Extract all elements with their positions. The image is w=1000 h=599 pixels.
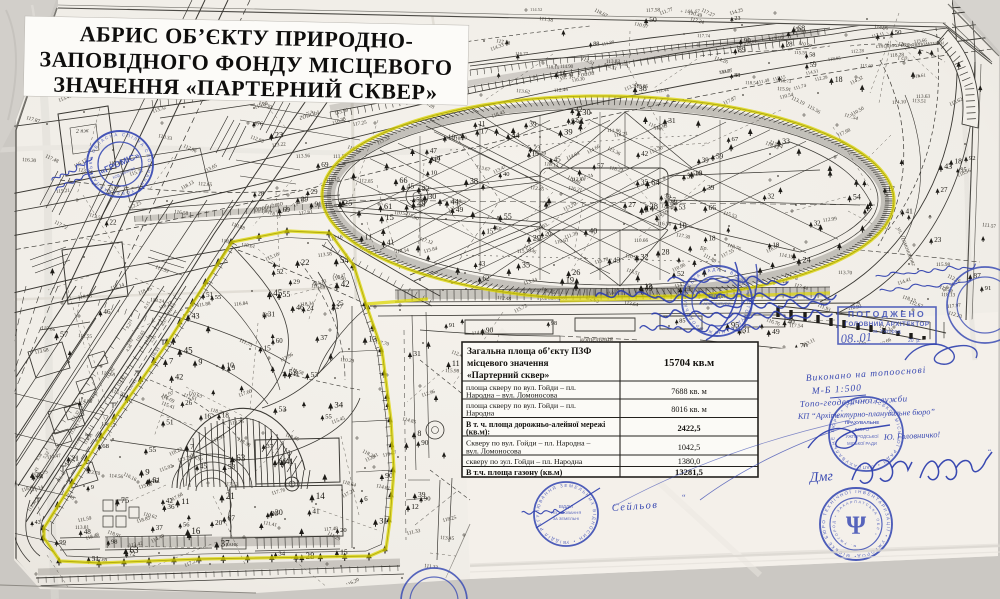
svg-text:39: 39 [529,119,537,128]
svg-text:6: 6 [364,496,368,503]
svg-text:ГОЛОВНИЙ АРХІТЕКТОР: ГОЛОВНИЙ АРХІТЕКТОР [845,320,930,328]
svg-text:88: 88 [593,41,599,48]
svg-text:88: 88 [734,73,740,79]
svg-text:9: 9 [232,365,236,372]
svg-text:117.54: 117.54 [789,323,804,330]
svg-text:43: 43 [35,520,41,526]
svg-text:23: 23 [934,236,942,244]
svg-text:18: 18 [709,234,717,242]
svg-text:118.34: 118.34 [300,301,315,308]
svg-text:39: 39 [564,126,573,136]
svg-text:Загальна площа об’єкту ПЗФ: Загальна площа об’єкту ПЗФ [467,346,591,357]
svg-text:31: 31 [413,349,421,358]
svg-text:ПРАХУВАЛЬНЕ: ПРАХУВАЛЬНЕ [845,420,880,425]
svg-text:90: 90 [421,439,429,447]
svg-text:30: 30 [582,107,591,117]
svg-text:116.56: 116.56 [657,221,672,228]
svg-text:29: 29 [533,233,542,243]
svg-text:53: 53 [311,370,319,379]
svg-text:115.98: 115.98 [445,368,460,375]
svg-text:37: 37 [266,443,273,450]
svg-text:9: 9 [198,358,202,367]
svg-text:113.45: 113.45 [440,535,455,542]
svg-text:90: 90 [424,495,431,502]
svg-text:08..01: 08..01 [840,330,872,346]
svg-text:115.87: 115.87 [860,64,874,70]
svg-text:11: 11 [452,359,460,368]
svg-text:37: 37 [221,538,231,548]
svg-text:22: 22 [301,258,309,267]
svg-text:37: 37 [156,524,164,532]
svg-text:98: 98 [551,321,557,327]
svg-text:30: 30 [428,192,436,201]
svg-text:18: 18 [835,75,843,84]
svg-text:і ср.: і ср. [898,54,910,62]
svg-text:56: 56 [183,522,190,529]
svg-text:63: 63 [236,453,246,463]
svg-text:9: 9 [145,466,150,476]
svg-text:15704 кв.м: 15704 кв.м [664,358,714,369]
svg-text:55: 55 [282,290,290,299]
svg-text:42: 42 [575,106,583,114]
svg-text:60: 60 [276,338,283,345]
svg-text:10: 10 [679,221,687,230]
svg-text:117.48: 117.48 [324,526,339,533]
svg-text:41: 41 [906,208,914,216]
svg-text:22: 22 [110,219,118,227]
svg-text:1042,5: 1042,5 [678,443,701,452]
svg-text:12: 12 [411,502,419,511]
svg-text:10: 10 [431,169,438,176]
svg-text:91: 91 [985,285,992,292]
svg-text:31: 31 [435,155,442,162]
svg-text:114.90: 114.90 [560,65,574,70]
svg-text:57: 57 [60,330,68,339]
svg-text:РЕГУЛЮВАННЯ: РЕГУЛЮВАННЯ [551,510,582,515]
svg-text:В т.ч. площа газону (кв.м): В т.ч. площа газону (кв.м) [466,468,563,477]
svg-text:92: 92 [969,155,976,162]
svg-text:116.77: 116.77 [515,52,529,57]
svg-text:МІСЬКОЇ РАДИ: МІСЬКОЇ РАДИ [847,441,877,446]
svg-text:72: 72 [129,552,135,558]
svg-text:2 пж: 2 пж [76,128,90,135]
svg-text:117.39: 117.39 [532,150,547,157]
svg-text:99: 99 [59,539,66,546]
svg-text:20: 20 [215,519,223,527]
svg-text:59: 59 [716,152,724,161]
svg-text:Бр.: Бр. [494,226,503,232]
svg-text:13281,5: 13281,5 [675,467,703,477]
svg-text:42: 42 [175,373,183,382]
svg-text:49: 49 [772,327,780,336]
svg-text:11: 11 [365,233,372,242]
svg-text:“: “ [988,448,991,456]
svg-text:114.10: 114.10 [892,99,907,106]
svg-text:43: 43 [944,162,952,171]
svg-text:49: 49 [645,283,653,292]
svg-text:45: 45 [184,346,194,356]
svg-text:37: 37 [320,334,328,342]
svg-text:40: 40 [503,171,510,178]
svg-text:116.30: 116.30 [22,157,37,164]
svg-text:15: 15 [486,227,494,235]
svg-text:115.18: 115.18 [517,248,532,255]
svg-text:115.59: 115.59 [794,51,808,56]
svg-text:113.63: 113.63 [916,94,931,100]
svg-text:62: 62 [483,276,490,283]
svg-text:20 р.: 20 р. [908,338,921,344]
svg-text:44: 44 [512,131,520,140]
svg-text:38: 38 [470,177,478,186]
svg-text:39: 39 [707,184,715,192]
svg-text:58: 58 [228,462,236,471]
svg-text:61: 61 [384,202,392,211]
svg-text:(кв.м):: (кв.м): [466,428,490,437]
svg-text:21: 21 [226,491,235,501]
svg-text:23: 23 [734,16,740,22]
svg-text:52: 52 [277,268,285,276]
svg-text:27: 27 [941,186,949,194]
svg-text:68: 68 [102,443,109,450]
svg-text:98: 98 [111,539,117,546]
svg-text:114.56: 114.56 [109,473,124,480]
svg-text:54: 54 [853,192,861,201]
svg-text:35: 35 [522,260,530,269]
svg-text:28: 28 [258,191,265,198]
svg-text:117.52: 117.52 [224,481,239,488]
svg-text:31: 31 [668,116,676,125]
svg-text:39: 39 [702,156,710,164]
svg-text:1380,0: 1380,0 [678,457,701,466]
svg-text:25: 25 [337,299,345,307]
svg-text:45: 45 [200,464,207,471]
svg-text:28: 28 [662,248,670,257]
svg-text:8: 8 [417,429,421,438]
svg-text:Ψ: Ψ [846,511,867,540]
svg-text:114.52: 114.52 [530,7,542,12]
svg-text:23: 23 [275,130,283,139]
svg-text:17: 17 [481,127,489,136]
svg-text:117.58: 117.58 [646,7,661,14]
svg-text:112.44: 112.44 [554,87,569,94]
svg-text:90: 90 [486,325,494,334]
svg-text:91: 91 [449,322,455,329]
svg-text:14: 14 [316,491,326,501]
svg-text:46: 46 [103,308,111,316]
svg-text:28: 28 [786,42,793,49]
svg-text:16: 16 [191,526,200,536]
svg-text:“: “ [682,493,686,502]
svg-text:114.82: 114.82 [78,398,93,405]
svg-text:18: 18 [954,157,962,166]
svg-text:115.21: 115.21 [56,188,71,195]
svg-text:7: 7 [169,356,174,366]
svg-text:місцевого значення: місцевого значення [467,358,549,369]
svg-text:110.52: 110.52 [394,210,409,217]
svg-text:113.56: 113.56 [296,153,311,160]
svg-text:55: 55 [215,294,222,301]
svg-text:113.81: 113.81 [75,525,90,531]
svg-text:15: 15 [264,344,272,353]
svg-text:55: 55 [504,212,512,221]
svg-text:42: 42 [641,150,649,158]
svg-text:66: 66 [709,203,717,212]
svg-text:32: 32 [768,193,775,200]
svg-text:111.55: 111.55 [78,333,93,340]
svg-text:8016 кв. м: 8016 кв. м [671,405,707,414]
svg-text:Народна: Народна [466,409,495,418]
svg-text:50: 50 [649,15,657,24]
svg-text:25: 25 [344,198,353,208]
svg-text:43: 43 [613,255,621,264]
svg-text:112.28: 112.28 [851,49,865,55]
svg-text:9: 9 [91,484,94,491]
svg-text:43: 43 [192,312,200,321]
svg-text:Народна – вул. Ломоносова: Народна – вул. Ломоносова [466,391,558,400]
svg-text:«Партерний сквер»: «Партерний сквер» [467,370,550,381]
svg-text:66: 66 [399,176,407,185]
svg-text:м. Ужгород: м. Ужгород [873,329,901,335]
svg-text:40: 40 [589,227,597,236]
svg-text:64: 64 [651,177,660,187]
svg-text:45: 45 [407,182,415,191]
svg-text:41: 41 [312,508,320,516]
svg-text:34: 34 [334,399,343,409]
svg-text:69: 69 [321,160,329,169]
svg-text:35: 35 [641,178,649,187]
svg-text:112.85: 112.85 [359,178,374,185]
svg-text:58: 58 [809,52,815,59]
svg-text:2422,5: 2422,5 [677,424,700,433]
svg-text:67: 67 [732,136,739,143]
svg-text:57: 57 [597,163,604,170]
svg-text:7: 7 [190,442,194,451]
svg-text:85: 85 [679,317,685,324]
svg-text:скверу по зул. Гойди – пл. Нар: скверу по зул. Гойди – пл. Народна [466,457,583,466]
svg-text:ПОГОДЖЕНО: ПОГОДЖЕНО [848,309,926,319]
svg-text:Бр.: Бр. [699,246,708,252]
svg-text:22: 22 [422,184,430,193]
svg-text:67: 67 [228,514,236,523]
svg-text:24: 24 [803,256,812,265]
svg-text:19: 19 [566,276,574,285]
svg-text:113.70: 113.70 [838,270,853,276]
svg-text:53: 53 [679,205,686,212]
svg-text:89: 89 [738,46,746,54]
svg-text:112.65: 112.65 [198,181,213,188]
svg-text:55: 55 [149,445,157,454]
svg-text:11: 11 [478,119,485,128]
svg-text:41: 41 [285,457,293,466]
svg-text:43: 43 [479,261,486,268]
svg-text:20: 20 [340,527,347,534]
svg-text:20: 20 [545,231,552,238]
svg-text:32: 32 [640,252,648,261]
svg-text:30: 30 [275,508,283,517]
svg-text:50: 50 [895,29,902,36]
svg-text:29: 29 [293,278,300,285]
svg-text:110.66: 110.66 [634,238,649,244]
svg-text:31: 31 [379,516,388,526]
svg-text:117.74: 117.74 [697,34,711,39]
svg-text:76: 76 [257,120,264,127]
svg-text:14: 14 [645,204,654,214]
svg-text:Дмг: Дмг [807,469,834,486]
svg-text:7688 кв. м: 7688 кв. м [671,387,707,396]
svg-text:Бр.: Бр. [261,312,270,318]
svg-text:вул. Ломоносова: вул. Ломоносова [466,447,522,456]
svg-text:16: 16 [204,413,212,421]
svg-text:27: 27 [628,200,636,209]
svg-text:ЗА ЗЕМЕЛЬНІ: ЗА ЗЕМЕЛЬНІ [553,516,580,521]
svg-text:УЖГОРОДСЬКОЇ: УЖГОРОДСЬКОЇ [845,434,879,439]
svg-text:75: 75 [121,496,129,505]
svg-text:59: 59 [810,62,817,69]
